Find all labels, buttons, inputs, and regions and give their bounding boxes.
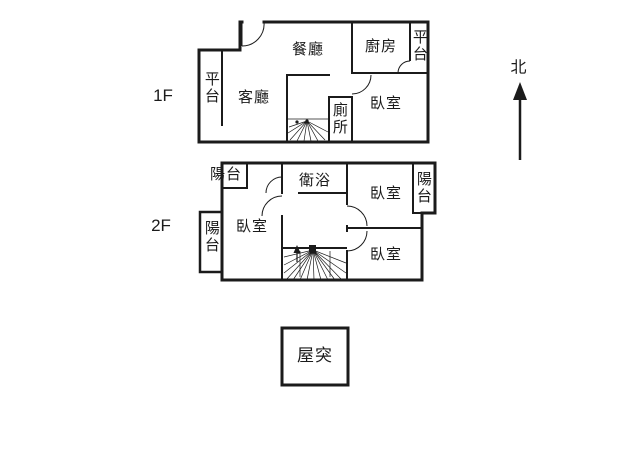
bedroom-top-right-door-icon — [347, 206, 367, 226]
floorplan-drawing — [0, 0, 640, 452]
bedroom-left-door-icon — [262, 196, 282, 216]
room-label-balcony-right: 陽台 — [415, 171, 431, 205]
room-label-bathroom: 衛浴 — [299, 173, 331, 189]
north-arrow-icon — [513, 82, 527, 160]
room-label-dining-room: 餐廳 — [292, 42, 324, 58]
room-label-toilet: 廁所 — [331, 102, 347, 136]
floor2-stairs-icon — [282, 245, 347, 280]
room-label-bedroom-1f: 臥室 — [370, 96, 402, 112]
bedroom1f-door-icon — [352, 75, 371, 94]
room-label-bedroom-left-2f: 臥室 — [236, 219, 268, 235]
room-label-platform-left-1f: 平台 — [203, 71, 219, 105]
room-label-platform-right-1f: 平台 — [411, 29, 427, 63]
dining-entry-door-icon — [242, 22, 264, 46]
room-label-balcony-top-left: 陽台 — [210, 167, 242, 183]
room-label-bedroom-top-right: 臥室 — [370, 186, 402, 202]
floor2-label: 2F — [151, 217, 171, 235]
north-label: 北 — [510, 61, 527, 78]
kitchen-platform-door-icon — [398, 61, 410, 73]
floor1-door-arcs — [242, 22, 410, 94]
room-label-kitchen: 廚房 — [365, 39, 397, 55]
room-label-balcony-left: 陽台 — [203, 220, 219, 254]
room-label-bedroom-bottom-right: 臥室 — [370, 247, 402, 263]
bedroom-bottom-right-door-icon — [347, 231, 367, 251]
floor1-interior-walls — [222, 22, 428, 142]
floor1-label: 1F — [153, 87, 173, 105]
floor1-stairs-icon — [287, 119, 329, 141]
room-label-roof-protrusion: 屋突 — [297, 347, 333, 365]
floorplan-page: 1F 平台 客廳 餐廳 廚房 平台 廁所 臥室 2F 陽台 陽台 臥室 衛浴 臥… — [0, 0, 640, 452]
room-label-living-room: 客廳 — [238, 90, 270, 106]
bathroom-door-icon — [266, 177, 282, 193]
